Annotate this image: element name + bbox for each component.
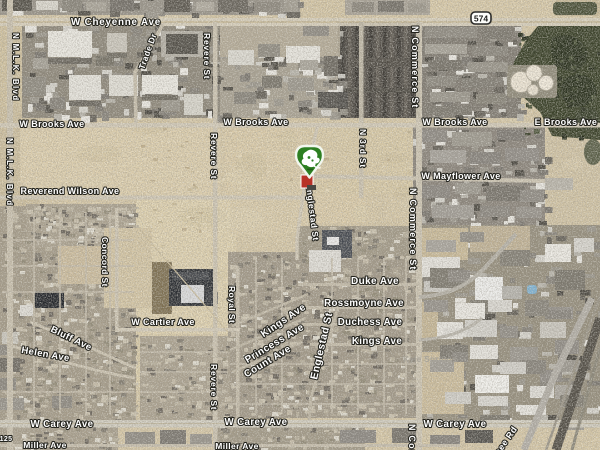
svg-text:W Cartier Ave: W Cartier Ave — [131, 317, 195, 327]
svg-text:Miller Ave: Miller Ave — [23, 440, 67, 450]
svg-text:Concord St: Concord St — [100, 237, 110, 287]
svg-text:Reverend Wilson Ave: Reverend Wilson Ave — [21, 186, 120, 196]
svg-text:N M.L.K. Blvd: N M.L.K. Blvd — [11, 33, 20, 101]
svg-text:N Commerce St: N Commerce St — [410, 26, 420, 109]
svg-text:N Commerce St: N Commerce St — [407, 424, 417, 450]
svg-text:N Commerce St: N Commerce St — [408, 188, 418, 271]
svg-text:Revere St: Revere St — [209, 364, 219, 410]
svg-text:W Brooks Ave: W Brooks Ave — [19, 119, 84, 129]
svg-text:W Carey Ave: W Carey Ave — [31, 419, 94, 430]
svg-text:125: 125 — [0, 436, 12, 443]
svg-text:N M.L.K. Blvd: N M.L.K. Blvd — [5, 138, 14, 206]
svg-text:W Mayflower Ave: W Mayflower Ave — [421, 171, 500, 181]
svg-text:W Carey Ave: W Carey Ave — [225, 417, 288, 428]
svg-text:W Brooks Ave: W Brooks Ave — [422, 117, 487, 127]
svg-text:Duke Ave: Duke Ave — [351, 276, 399, 287]
svg-text:Revere St: Revere St — [202, 33, 212, 79]
svg-text:W Cheyenne Ave: W Cheyenne Ave — [71, 17, 161, 28]
svg-text:Kings Ave: Kings Ave — [352, 336, 402, 347]
svg-text:574: 574 — [474, 14, 488, 24]
svg-text:E Brooks Ave: E Brooks Ave — [535, 117, 598, 127]
svg-text:W Carey Ave: W Carey Ave — [424, 419, 487, 430]
svg-text:N 3rd St: N 3rd St — [358, 129, 368, 168]
svg-text:Rossmoyne Ave: Rossmoyne Ave — [324, 298, 404, 309]
svg-text:Revere St: Revere St — [209, 133, 219, 179]
svg-text:Kyle Springs: Kyle Springs — [403, 355, 457, 364]
svg-text:Royal St: Royal St — [227, 286, 237, 323]
svg-text:W Brooks Ave: W Brooks Ave — [223, 117, 288, 127]
svg-text:Duchess Ave: Duchess Ave — [338, 317, 403, 328]
svg-text:Miller Ave: Miller Ave — [215, 441, 259, 450]
